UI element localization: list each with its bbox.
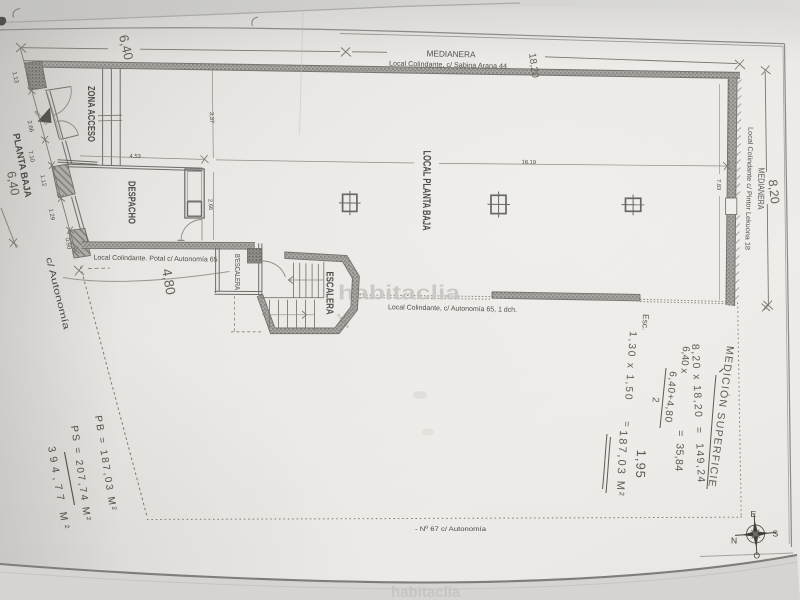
svg-text:DESPACHO: DESPACHO xyxy=(126,181,137,224)
svg-text:habitaclia: habitaclia xyxy=(391,584,461,600)
svg-text:- Nº 67 c/ Autonomía: - Nº 67 c/ Autonomía xyxy=(415,526,486,533)
svg-text:4.53: 4.53 xyxy=(129,154,140,160)
svg-text:18.19: 18.19 xyxy=(521,160,536,166)
svg-text:B'ESCALERA: B'ESCALERA xyxy=(233,254,242,290)
svg-text:LOCAL PLANTA BAJA: LOCAL PLANTA BAJA xyxy=(420,150,433,230)
svg-text:6,40 x: 6,40 x xyxy=(678,346,691,374)
svg-text:E: E xyxy=(751,509,757,519)
svg-text:2: 2 xyxy=(651,397,662,403)
svg-text:2.66: 2.66 xyxy=(207,199,214,211)
svg-text:ESCALERA: ESCALERA xyxy=(324,272,335,315)
svg-text:N: N xyxy=(731,536,737,546)
svg-text:MEDIANERA: MEDIANERA xyxy=(756,167,767,209)
svg-text:MEDIANERA: MEDIANERA xyxy=(426,48,476,59)
svg-text:8,20: 8,20 xyxy=(766,179,782,205)
svg-text:Esc.: Esc. xyxy=(640,314,651,331)
svg-text:O: O xyxy=(754,551,761,561)
svg-text:= 35,84: = 35,84 xyxy=(672,430,686,472)
svg-text:3,37: 3,37 xyxy=(208,112,214,123)
svg-text:7.83: 7.83 xyxy=(715,179,721,190)
svg-text:S: S xyxy=(773,529,779,539)
svg-text:1,95: 1,95 xyxy=(633,449,649,479)
svg-text:ZONA ACCESO: ZONA ACCESO xyxy=(85,86,97,142)
